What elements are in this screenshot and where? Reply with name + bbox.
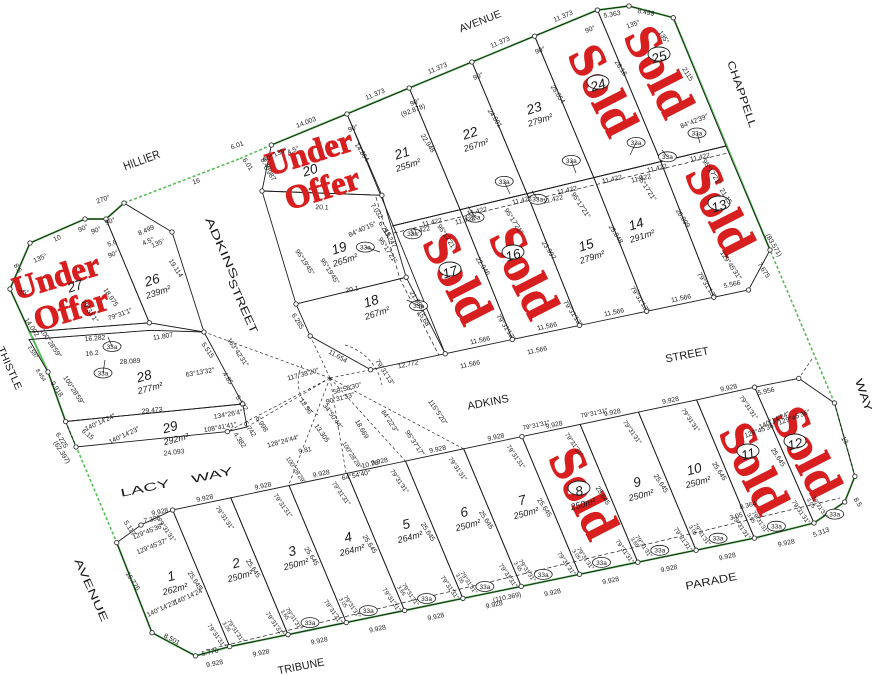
svg-text:33a: 33a xyxy=(360,245,371,252)
svg-text:33a: 33a xyxy=(107,344,118,351)
svg-text:20.1: 20.1 xyxy=(315,204,329,211)
svg-text:33a: 33a xyxy=(596,560,607,567)
svg-text:33a: 33a xyxy=(479,584,490,591)
svg-text:33a: 33a xyxy=(305,620,316,627)
svg-text:33a: 33a xyxy=(771,524,782,531)
svg-text:28.089: 28.089 xyxy=(119,358,140,366)
svg-text:33a: 33a xyxy=(538,572,549,579)
svg-text:33a: 33a xyxy=(829,512,840,519)
svg-text:33a: 33a xyxy=(631,140,642,147)
svg-text:33a: 33a xyxy=(713,536,724,543)
svg-text:33a: 33a xyxy=(654,548,665,555)
svg-text:16.2: 16.2 xyxy=(85,350,99,358)
svg-text:75°: 75° xyxy=(19,288,30,296)
svg-text:33a: 33a xyxy=(363,608,374,615)
svg-text:33a: 33a xyxy=(532,197,543,204)
svg-text:33a: 33a xyxy=(662,154,673,161)
svg-text:33a: 33a xyxy=(421,596,432,603)
